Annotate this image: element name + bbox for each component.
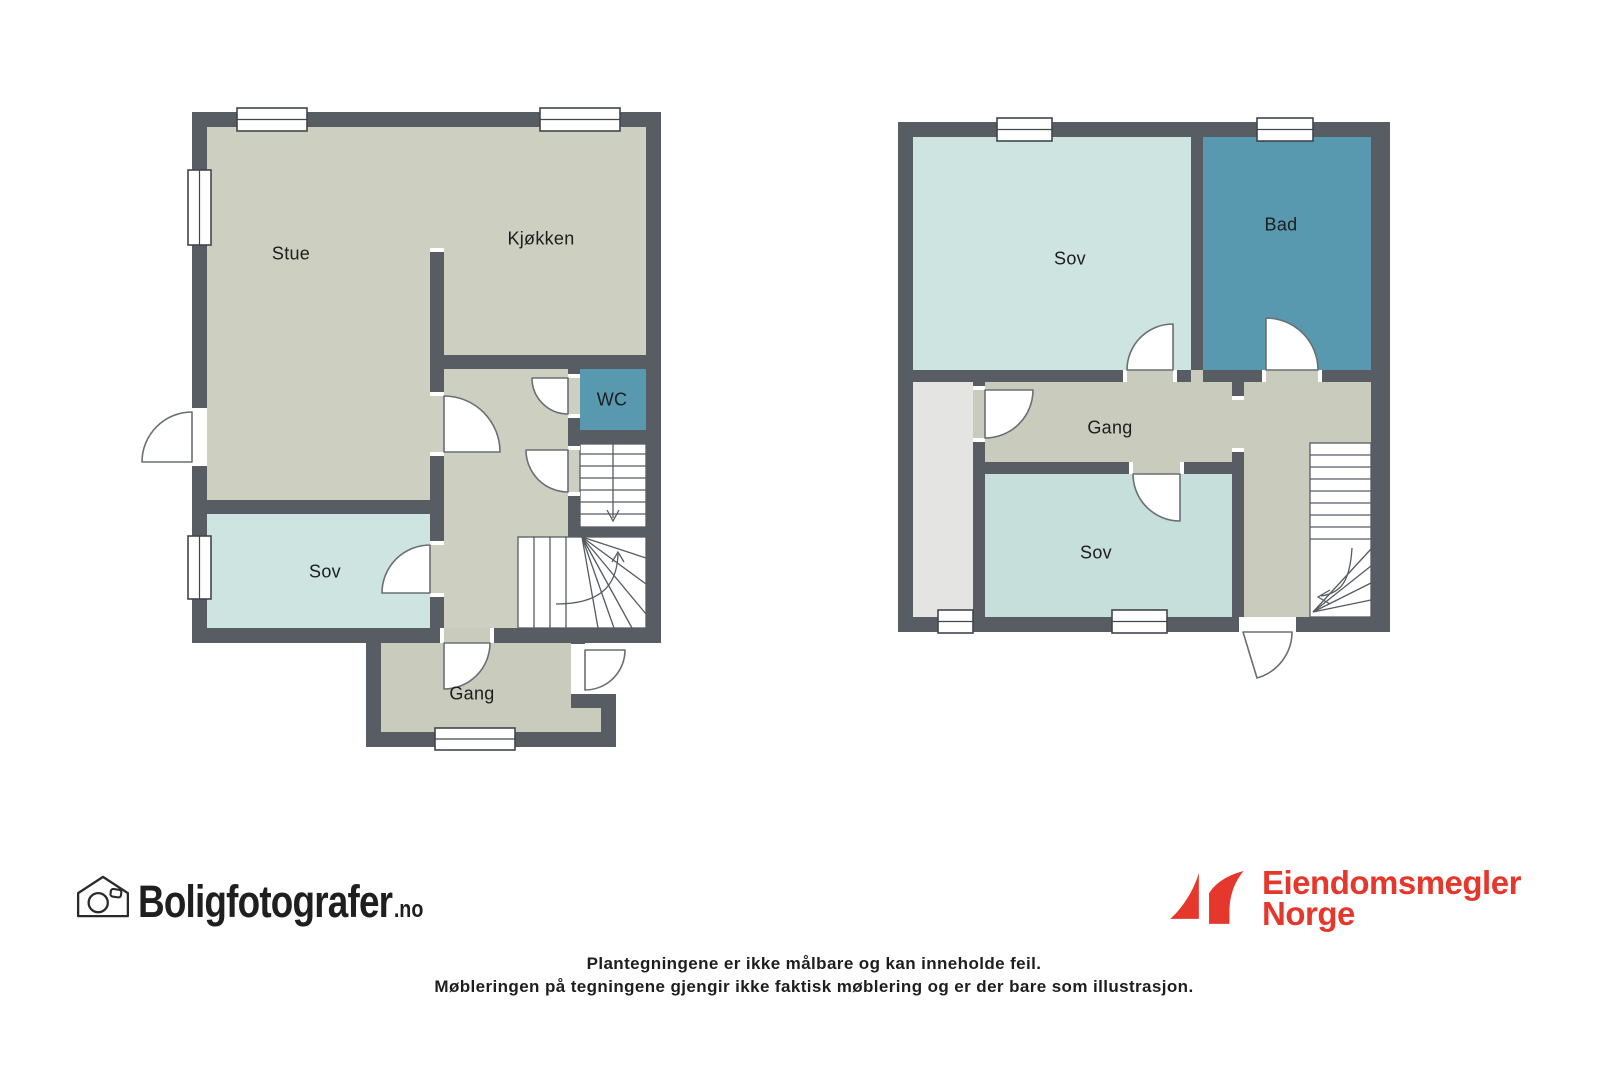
second-floor-plan [898, 118, 1390, 678]
boligfotografer-logo: Boligfotografer.no [138, 880, 423, 924]
room-label-sov-first: Sov [309, 562, 341, 583]
staircase-second-floor [1310, 443, 1371, 617]
entry-door-opening [192, 412, 207, 462]
eiendomsmegler-line2: Norge [1262, 898, 1521, 929]
boligfotografer-name: Boligfotografer [138, 880, 392, 924]
exterior-door-opening-second [1243, 617, 1292, 632]
staircase-straight-run [580, 444, 646, 527]
house-camera-icon [76, 874, 130, 923]
room-label-bad: Bad [1265, 215, 1298, 236]
door-exterior-gang [585, 650, 625, 690]
eiendomsmegler-logo-icon [1168, 871, 1246, 933]
room-label-sov-bottom: Sov [1080, 543, 1112, 564]
disclaimer-text: Plantegningene er ikke målbare og kan in… [24, 953, 1600, 998]
staircase-winder [518, 537, 646, 628]
eiendomsmegler-logo-text: Eiendomsmegler Norge [1262, 867, 1521, 929]
room-label-gang-first: Gang [449, 684, 494, 705]
room-label-sov-top: Sov [1054, 249, 1086, 270]
floor-plan-page: Stue Kjøkken WC Sov Gang Sov Bad Gang So… [0, 0, 1600, 1067]
door-exterior-second [1243, 632, 1292, 678]
disclaimer-line2: Møbleringen på tegningene gjengir ikke f… [24, 976, 1600, 999]
room-label-gang-second: Gang [1087, 418, 1132, 439]
door-exterior-left [142, 412, 192, 462]
room-label-wc: WC [597, 390, 628, 411]
boligfotografer-tld: .no [394, 896, 424, 924]
eiendomsmegler-line1: Eiendomsmegler [1262, 867, 1521, 898]
room-label-kjokken: Kjøkken [507, 229, 574, 250]
room-label-stue: Stue [272, 244, 310, 265]
disclaimer-line1: Plantegningene er ikke målbare og kan in… [24, 953, 1600, 976]
first-floor-plan [142, 108, 661, 750]
